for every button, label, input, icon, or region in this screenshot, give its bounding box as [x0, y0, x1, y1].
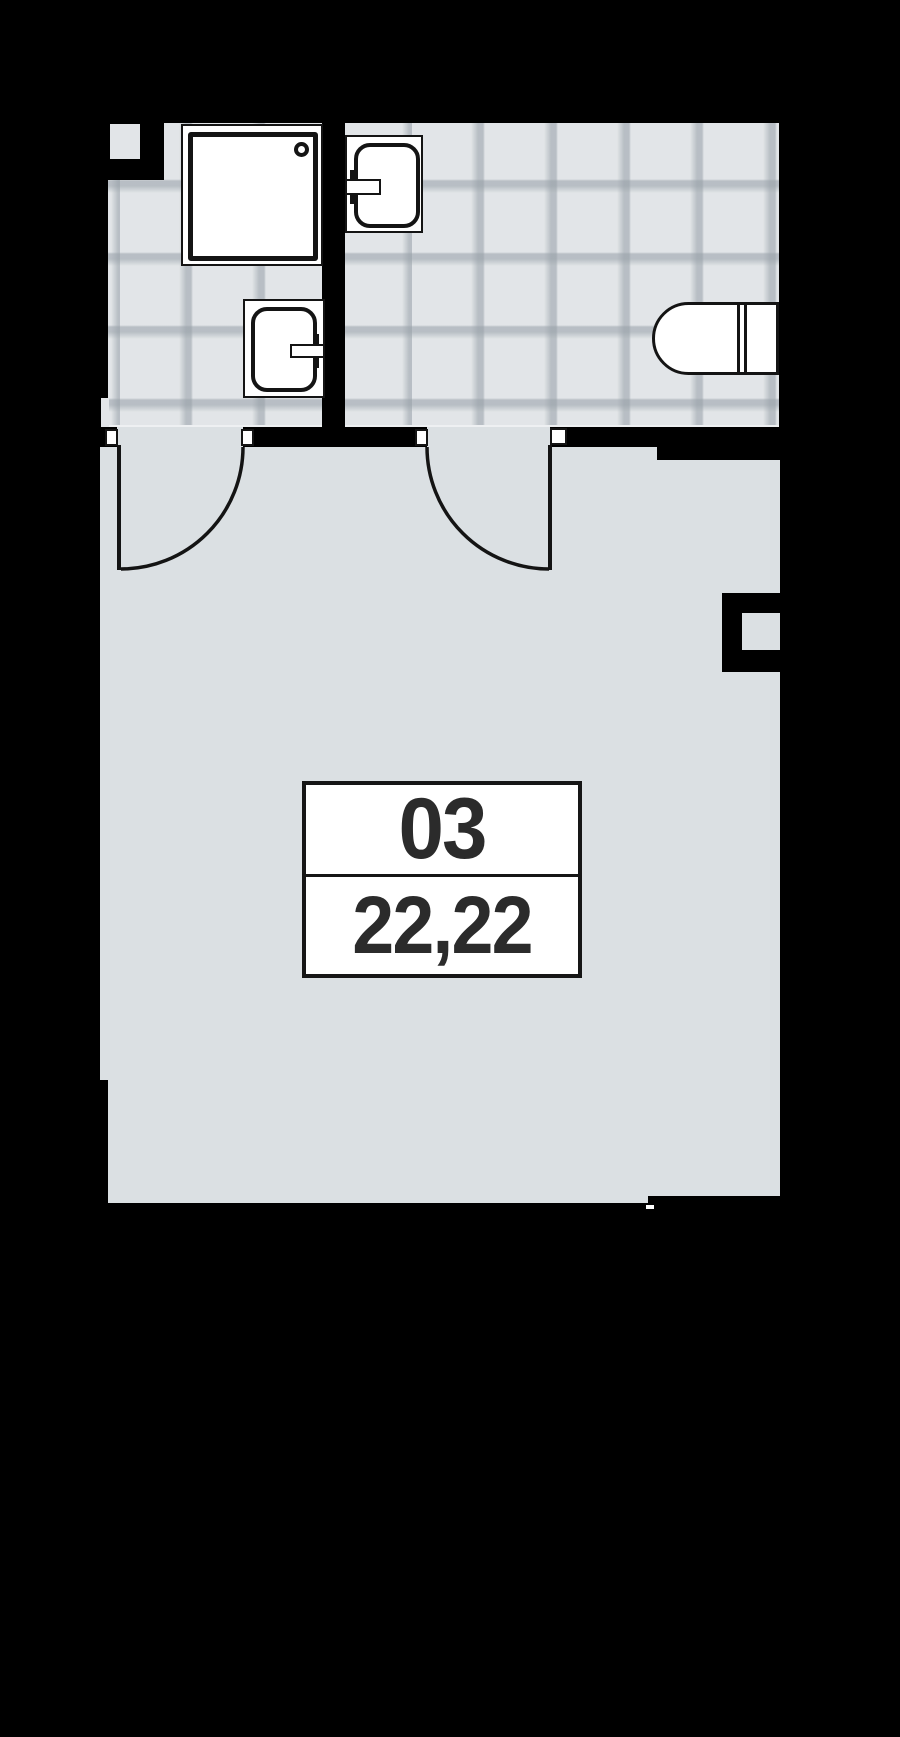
door-right-jamb-latch: [415, 429, 428, 446]
bathroom-left-floor-extension: [101, 398, 109, 427]
wall-left-lower: [100, 1080, 108, 1203]
water-heater-divider-line: [744, 305, 747, 372]
wall-top-left-recess: [110, 124, 140, 159]
sink-top-faucet-icon: [345, 179, 381, 195]
niche-opening: [742, 613, 780, 650]
sink-bottom-surround: [243, 299, 325, 398]
floor-plan-canvas: 03 22,22: [0, 0, 900, 1737]
water-heater-icon: [652, 302, 779, 375]
shower-drain-icon: [294, 142, 309, 157]
door-left-jamb-hinge: [105, 429, 118, 446]
unit-number: 03: [313, 785, 571, 874]
sink-top-surround: [345, 135, 423, 233]
door-right-threshold: [427, 427, 550, 447]
shower-tray-icon: [188, 132, 318, 261]
door-left-jamb-latch: [241, 429, 254, 446]
water-heater-divider-line: [737, 305, 740, 372]
unit-label-box[interactable]: 03 22,22: [302, 781, 582, 978]
door-left-threshold: [117, 427, 243, 447]
door-left-leaf: [117, 445, 121, 570]
unit-area: 22,22: [317, 877, 567, 974]
door-right-jamb-hinge: [550, 428, 567, 445]
sink-bottom-faucet-icon: [290, 344, 325, 358]
wall-step-right: [657, 447, 780, 460]
wall-marker-dash: [646, 1205, 654, 1209]
shower-surround: [181, 124, 323, 266]
door-right-leaf: [548, 445, 552, 570]
wall-bottom-right-patch: [648, 1196, 780, 1203]
